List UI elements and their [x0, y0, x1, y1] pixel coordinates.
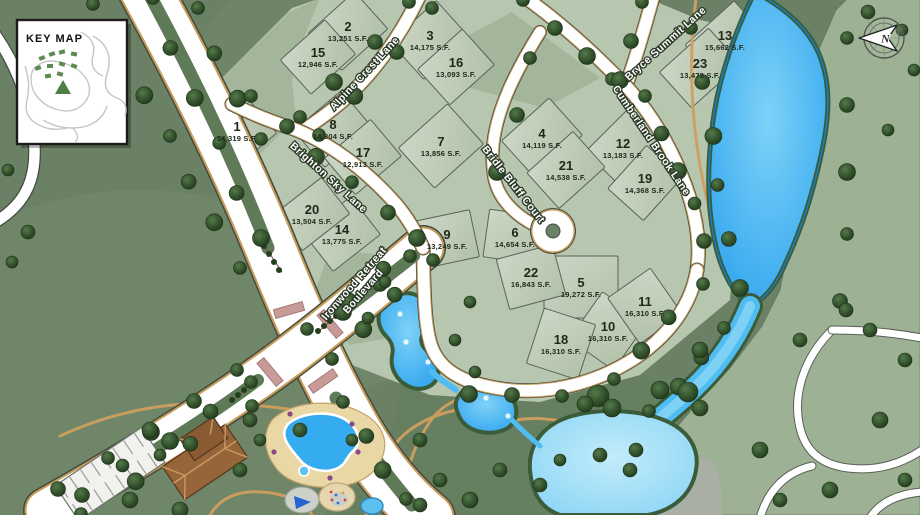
- tree-icon: [243, 413, 257, 427]
- amenity-pond: [361, 498, 383, 514]
- tree-icon: [426, 2, 439, 15]
- tree-icon: [404, 250, 417, 263]
- lot-sqft: 13,183 S.F.: [603, 151, 643, 160]
- tree-icon: [793, 333, 807, 347]
- tree-icon: [337, 396, 350, 409]
- lot-sqft: 16,310 S.F.: [625, 309, 665, 318]
- tree-icon: [245, 90, 258, 103]
- tree-icon: [387, 287, 402, 302]
- site-map-canvas: KEY MAP N: [0, 0, 920, 515]
- lot-sqft: 13,775 S.F.: [322, 237, 362, 246]
- tree-icon: [254, 434, 266, 446]
- lot-number: 19: [638, 171, 652, 186]
- tree-icon: [548, 21, 563, 36]
- tree-icon: [433, 473, 447, 487]
- tree-icon: [822, 482, 838, 498]
- lot-sqft: 16,310 S.F.: [588, 334, 628, 343]
- tree-icon: [187, 394, 202, 409]
- tree-icon: [643, 405, 656, 418]
- tree-icon: [711, 179, 724, 192]
- tree-icon: [206, 214, 223, 231]
- tree-icon: [186, 90, 203, 107]
- key-map-inset: KEY MAP: [17, 20, 131, 148]
- tree-icon: [841, 228, 854, 241]
- lot-number: 13: [718, 28, 732, 43]
- tree-icon: [253, 230, 270, 247]
- tree-icon: [294, 111, 307, 124]
- tree-icon: [469, 366, 481, 378]
- tree-icon: [183, 436, 198, 451]
- lot-sqft: 12,946 S.F.: [298, 60, 338, 69]
- tree-icon: [102, 452, 115, 465]
- tree-icon: [533, 478, 547, 492]
- tree-icon: [381, 205, 396, 220]
- tree-icon: [579, 48, 596, 65]
- tree-icon: [608, 373, 621, 386]
- lot-sqft: 13,473 S.F.: [680, 71, 720, 80]
- lot-number: 16: [449, 55, 463, 70]
- tree-icon: [639, 90, 652, 103]
- lot-number: 20: [305, 202, 319, 217]
- lot-number: 12: [616, 136, 630, 151]
- lot-number: 4: [538, 126, 546, 141]
- tree-icon: [863, 323, 877, 337]
- tree-icon: [705, 128, 722, 145]
- lot-number: 5: [577, 275, 584, 290]
- lot-sqft: 16,310 S.F.: [541, 347, 581, 356]
- lot-sqft: 14,319 S.F.: [217, 134, 257, 143]
- tree-icon: [229, 90, 246, 107]
- lot-number: 22: [524, 265, 538, 280]
- tree-icon: [593, 448, 607, 462]
- tree-icon: [172, 502, 188, 515]
- lot-number: 18: [554, 332, 568, 347]
- tree-icon: [752, 442, 768, 458]
- tree-icon: [293, 423, 307, 437]
- lot-sqft: 14,654 S.F.: [495, 240, 535, 249]
- tree-icon: [245, 376, 258, 389]
- tree-icon: [164, 130, 177, 143]
- tree-icon: [898, 353, 912, 367]
- tree-icon: [154, 449, 166, 461]
- tree-icon: [207, 46, 222, 61]
- tree-icon: [603, 399, 621, 417]
- lot-sqft: 19,272 S.F.: [561, 290, 601, 299]
- lot-number: 9: [443, 227, 450, 242]
- tree-icon: [427, 254, 440, 267]
- tree-icon: [87, 0, 100, 11]
- tree-icon: [505, 388, 520, 403]
- tree-icon: [623, 463, 637, 477]
- tree-icon: [732, 280, 749, 297]
- tree-icon: [400, 493, 413, 506]
- tree-icon: [697, 234, 712, 249]
- tree-icon: [462, 492, 478, 508]
- tree-icon: [692, 400, 708, 416]
- lot-number: 8: [329, 117, 336, 132]
- tree-icon: [678, 382, 698, 402]
- tree-icon: [233, 463, 247, 477]
- lot-number: 14: [335, 222, 350, 237]
- lot-sqft: 13,093 S.F.: [436, 70, 476, 79]
- tree-icon: [162, 433, 179, 450]
- lot-number: 21: [559, 158, 573, 173]
- tree-icon: [127, 473, 144, 490]
- tree-icon: [374, 462, 391, 479]
- lot-sqft: 15,662 S.F.: [705, 43, 745, 52]
- tree-icon: [142, 422, 158, 438]
- lot-number: 17: [356, 145, 370, 160]
- tree-icon: [136, 87, 153, 104]
- lot-sqft: 16,843 S.F.: [511, 280, 551, 289]
- tree-icon: [346, 434, 358, 446]
- tree-icon: [839, 164, 856, 181]
- key-map-title: KEY MAP: [26, 33, 83, 45]
- tree-icon: [524, 52, 537, 65]
- compass-label: N: [880, 32, 891, 46]
- tree-icon: [21, 225, 35, 239]
- lot-sqft: 14,368 S.F.: [625, 186, 665, 195]
- tree-icon: [697, 278, 710, 291]
- tree-icon: [234, 262, 247, 275]
- tree-icon: [624, 34, 639, 49]
- tree-icon: [2, 164, 14, 176]
- tree-icon: [326, 353, 339, 366]
- tree-icon: [872, 412, 888, 428]
- tree-icon: [840, 98, 855, 113]
- tree-icon: [75, 488, 90, 503]
- lot-number: 3: [426, 28, 433, 43]
- lot-sqft: 13,251 S.F.: [328, 34, 368, 43]
- tree-icon: [841, 32, 854, 45]
- tree-icon: [116, 459, 129, 472]
- tree-icon: [882, 124, 894, 136]
- tree-icon: [908, 64, 920, 76]
- tree-icon: [554, 454, 566, 466]
- tree-icon: [633, 342, 650, 359]
- lot-number: 1: [233, 119, 240, 134]
- lot-sqft: 14,804 S.F.: [313, 132, 353, 141]
- lot-number: 7: [437, 134, 444, 149]
- site-plan-map: KEY MAP N: [0, 0, 920, 515]
- lot-sqft: 12,913 S.F.: [343, 160, 383, 169]
- lot-sqft: 14,175 S.F.: [410, 43, 450, 52]
- tree-icon: [231, 364, 244, 377]
- tree-icon: [409, 230, 426, 247]
- tree-icon: [510, 108, 525, 123]
- tree-icon: [413, 498, 427, 512]
- tree-icon: [651, 381, 669, 399]
- tree-icon: [629, 443, 643, 457]
- tree-icon: [203, 404, 218, 419]
- tree-icon: [839, 303, 853, 317]
- lot-sqft: 13,504 S.F.: [292, 217, 332, 226]
- lot-number: 2: [344, 19, 351, 34]
- lot-number: 11: [638, 294, 652, 309]
- tree-icon: [122, 492, 138, 508]
- tree-icon: [359, 429, 374, 444]
- tree-icon: [413, 433, 427, 447]
- lot-sqft: 14,119 S.F.: [522, 141, 562, 150]
- tree-icon: [861, 5, 875, 19]
- lot-sqft: 14,538 S.F.: [546, 173, 586, 182]
- tree-icon: [718, 322, 731, 335]
- lot-sqft: 13,856 S.F.: [421, 149, 461, 158]
- tree-icon: [6, 256, 18, 268]
- tree-icon: [898, 473, 912, 487]
- spa: [299, 466, 309, 476]
- tree-icon: [721, 232, 736, 247]
- tree-icon: [301, 323, 314, 336]
- tree-icon: [280, 119, 295, 134]
- lot-number: 15: [311, 45, 325, 60]
- tree-icon: [556, 390, 569, 403]
- lot-number: 10: [601, 319, 615, 334]
- tree-icon: [461, 386, 478, 403]
- tree-icon: [577, 396, 593, 412]
- tree-icon: [229, 186, 244, 201]
- tree-icon: [773, 493, 787, 507]
- tree-icon: [326, 74, 343, 91]
- tree-icon: [246, 400, 259, 413]
- lot-number: 23: [693, 56, 707, 71]
- tree-icon: [464, 296, 476, 308]
- tree-icon: [181, 174, 196, 189]
- lot-sqft: 13,249 S.F.: [427, 242, 467, 251]
- tree-icon: [163, 41, 178, 56]
- tree-icon: [449, 334, 461, 346]
- tree-icon: [192, 2, 205, 15]
- lot-number: 6: [511, 225, 518, 240]
- tree-icon: [51, 482, 66, 497]
- tree-icon: [362, 312, 374, 324]
- tree-icon: [692, 342, 708, 358]
- tree-icon: [688, 197, 701, 210]
- tree-icon: [493, 463, 507, 477]
